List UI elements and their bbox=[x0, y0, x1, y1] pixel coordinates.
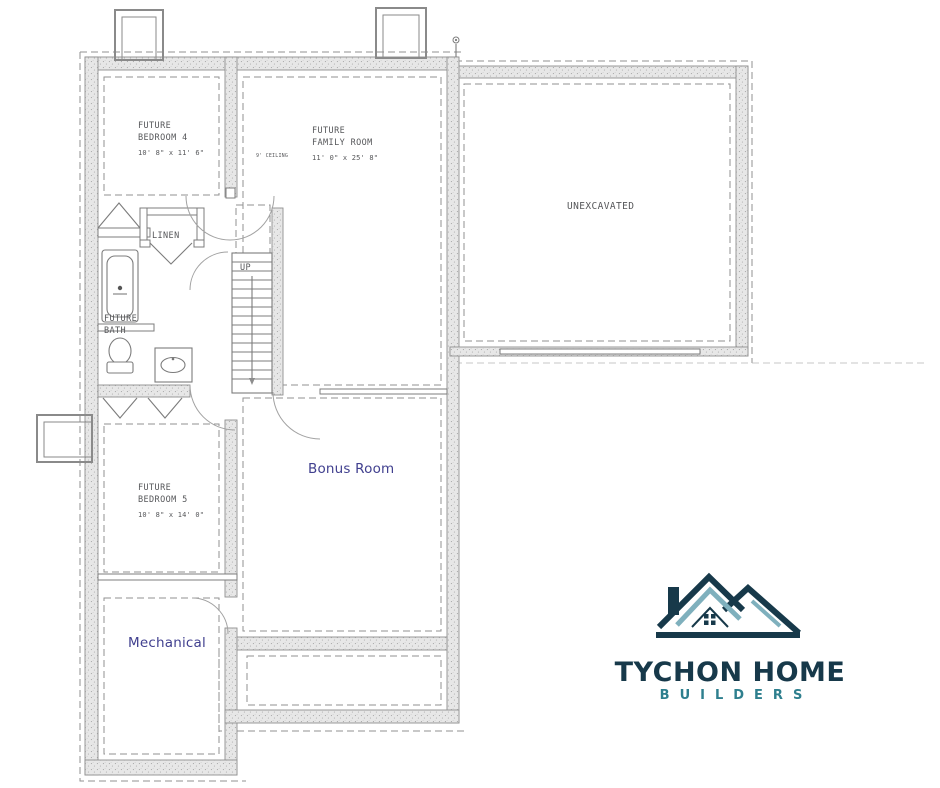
basement-floor-plan: UP FUTURE bbox=[0, 0, 940, 788]
family-room-dimensions: 11' 0" x 25' 8" bbox=[312, 154, 378, 162]
sink-vanity-icon bbox=[155, 348, 192, 382]
builder-logo: TYCHON HOME BUILDERS bbox=[615, 577, 846, 703]
bath-label-line1: FUTURE bbox=[104, 314, 137, 324]
logo-subtitle: BUILDERS bbox=[660, 688, 813, 703]
stairs: UP bbox=[232, 253, 272, 393]
bath-label-line2: BATH bbox=[104, 326, 126, 336]
bedroom5-dimensions: 10' 8" x 14' 0" bbox=[138, 511, 204, 519]
family-room-label-line1: FUTURE bbox=[312, 126, 345, 136]
bedroom5-label-line1: FUTURE bbox=[138, 483, 171, 493]
mechanical-label: Mechanical bbox=[128, 635, 206, 651]
section-marker bbox=[453, 37, 459, 57]
floor-plan-canvas: UP FUTURE bbox=[0, 0, 940, 788]
bedroom4-label-line2: BEDROOM 4 bbox=[138, 133, 188, 143]
toilet-icon bbox=[107, 338, 133, 373]
bedroom4-dimensions: 10' 8" x 11' 6" bbox=[138, 149, 204, 157]
linen-label: LINEN bbox=[152, 231, 180, 241]
logo-window-icon bbox=[704, 614, 716, 625]
bedroom5-label-line2: BEDROOM 5 bbox=[138, 495, 188, 505]
logo-title: TYCHON HOME bbox=[615, 657, 846, 688]
bedroom4-label-line1: FUTURE bbox=[138, 121, 171, 131]
logo-house-icon bbox=[656, 577, 800, 635]
bathtub-icon bbox=[102, 250, 138, 322]
unexcavated-label: UNEXCAVATED bbox=[567, 201, 634, 212]
bonus-room-label: Bonus Room bbox=[308, 461, 394, 477]
ceiling-note: 9' CEILING bbox=[256, 153, 288, 159]
family-room-label-line2: FAMILY ROOM bbox=[312, 138, 373, 148]
stairs-up-label: UP bbox=[240, 263, 251, 273]
